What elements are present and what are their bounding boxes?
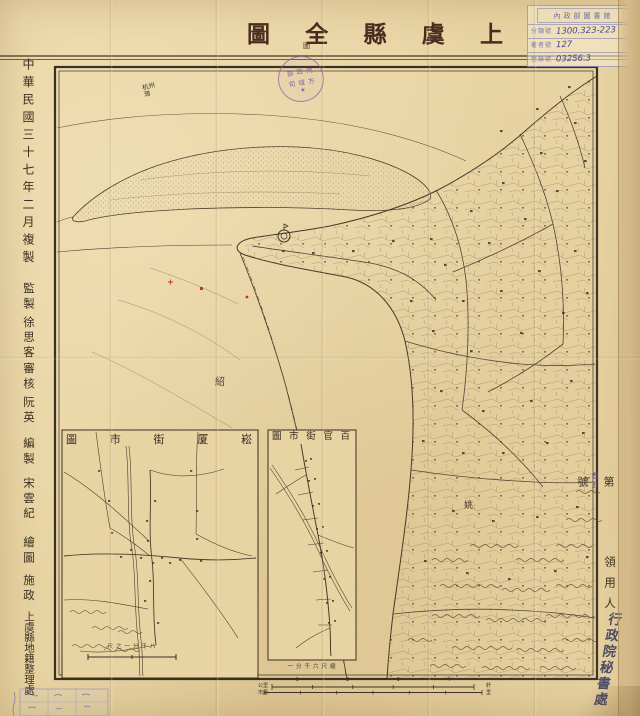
serial-handwritten: 叁五 <box>590 472 600 490</box>
shaoxing-boundary-label: 紹 <box>215 373 225 388</box>
inset-songxia-scale-note: 尺之一分千八 <box>98 642 168 650</box>
colophon-name-supervisor: 徐思客 <box>21 316 37 361</box>
colophon-date: 中華民國三十七年二月複製 <box>21 58 37 268</box>
scale-bar-numbers: 1 2 3 4 <box>272 677 474 683</box>
stamp-star: ★ <box>300 87 306 93</box>
holder-label: 領用人 <box>602 556 618 618</box>
accession-number-value: 03256.3 <box>556 54 591 65</box>
yuyao-boundary-label: 姚 <box>464 498 473 511</box>
main-scale-bar <box>264 684 482 695</box>
accession-number-label: 登錄號 <box>531 54 552 63</box>
library-label-header: 內政部圖書館 <box>537 8 629 23</box>
scale-unit-li: 市里 <box>244 690 268 697</box>
colophon-role-drafting: 繪圖 <box>21 536 37 567</box>
scale-bar-right-units: 粁 里 <box>486 683 500 696</box>
colophon-agency: 上虞縣地籍整理處 <box>21 611 37 695</box>
inset-baiguan <box>268 430 356 660</box>
inset-baiguan-title: 百官街市圖 <box>272 428 350 442</box>
map-sheet: 上虞縣全圖 圖 內政部圖書館 分類號 1300.323-223 著者號 127 … <box>0 0 640 716</box>
class-number-value: 1300.323-223 <box>556 25 616 37</box>
map-graphics <box>0 0 640 716</box>
colophon-role-compilation: 編製 <box>21 437 37 468</box>
red-marks <box>168 280 248 299</box>
colophon-role-review: 審核 <box>21 362 37 393</box>
scale-number: 2 <box>346 677 349 683</box>
scale-number: 4 <box>447 677 450 683</box>
serial-prefix: 第 <box>600 476 616 487</box>
author-number-label: 著者號 <box>531 40 552 49</box>
inset-songxia <box>62 430 258 678</box>
scale-unit-li-end: 里 <box>486 690 500 697</box>
author-number-value: 127 <box>556 40 572 50</box>
serial-number: 第 叁五 號 <box>602 468 616 494</box>
title-seal-mark: 圖 <box>303 41 310 51</box>
page-title: 上虞縣全圖 <box>247 15 503 45</box>
creeks <box>92 268 240 428</box>
inset-songxia-title: 崧厦街市圖 <box>66 431 252 447</box>
colophon-role-supervision: 監製 <box>21 282 37 313</box>
scale-bar-left-units: 公里 市里 <box>244 683 268 696</box>
class-number-label: 分類號 <box>531 26 552 35</box>
corner-shade <box>540 686 640 716</box>
colophon-name-reviewer: 阮英 <box>21 396 37 426</box>
serial-suffix: 號 <box>574 476 590 487</box>
colophon-name-compiler: 宋雲紀 <box>21 477 37 522</box>
sandbank-island <box>72 147 430 222</box>
inset-baiguan-scale-note: 一分千六尺縮 <box>284 662 342 670</box>
colophon-name-draftsman: 施政 <box>21 574 37 604</box>
scale-number: 3 <box>397 677 400 683</box>
sheet-edge-band <box>618 0 640 716</box>
scale-number: 1 <box>296 677 299 683</box>
